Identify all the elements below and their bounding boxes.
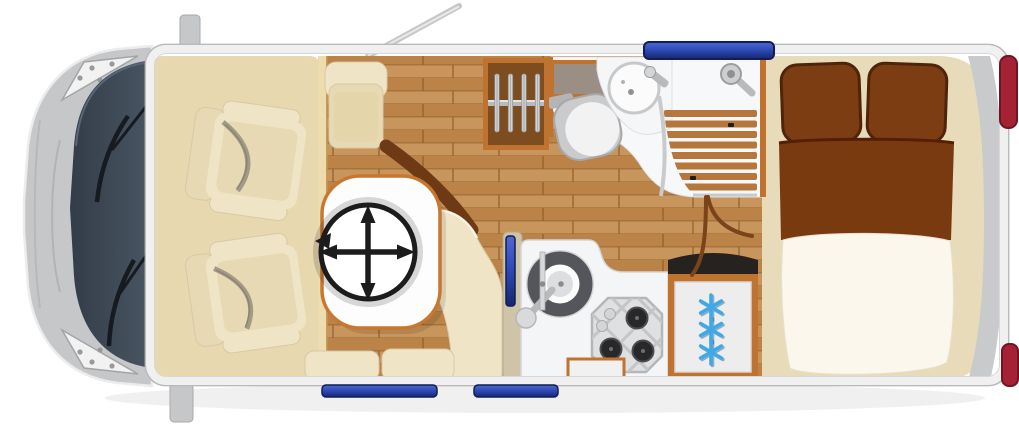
table-move-icon bbox=[315, 201, 419, 303]
blanket bbox=[779, 139, 954, 240]
sink-knob bbox=[516, 308, 536, 328]
fridge bbox=[668, 253, 758, 378]
hanger-icon bbox=[495, 74, 499, 132]
kitchen-step bbox=[568, 359, 624, 378]
taillight-top bbox=[1000, 56, 1017, 128]
pillow bbox=[867, 63, 948, 144]
floorplan-drawing bbox=[0, 0, 1019, 427]
hob-knob bbox=[597, 321, 608, 332]
window-bottom-right bbox=[474, 385, 558, 397]
bathroom-wall-right bbox=[760, 57, 766, 197]
taillight-bottom bbox=[1002, 344, 1018, 386]
hanger-icon bbox=[535, 74, 539, 132]
hanger-icon bbox=[508, 74, 512, 132]
floorplan-stage bbox=[0, 0, 1019, 427]
front-bench-seat bbox=[325, 62, 387, 148]
entry-pillar bbox=[503, 232, 522, 379]
duvet bbox=[782, 233, 954, 374]
entry-door-window bbox=[506, 236, 515, 306]
bench-cushion bbox=[305, 351, 379, 380]
bed bbox=[779, 63, 954, 375]
wardrobe bbox=[483, 58, 549, 150]
hob-knob bbox=[605, 309, 616, 320]
hanger-icon bbox=[522, 74, 526, 132]
window-bottom-left bbox=[322, 385, 437, 397]
bench-cushion bbox=[382, 349, 454, 380]
dinette-table bbox=[315, 176, 446, 334]
window-top bbox=[644, 42, 774, 59]
side-mirror-bottom bbox=[170, 384, 193, 422]
pillow bbox=[781, 63, 862, 144]
